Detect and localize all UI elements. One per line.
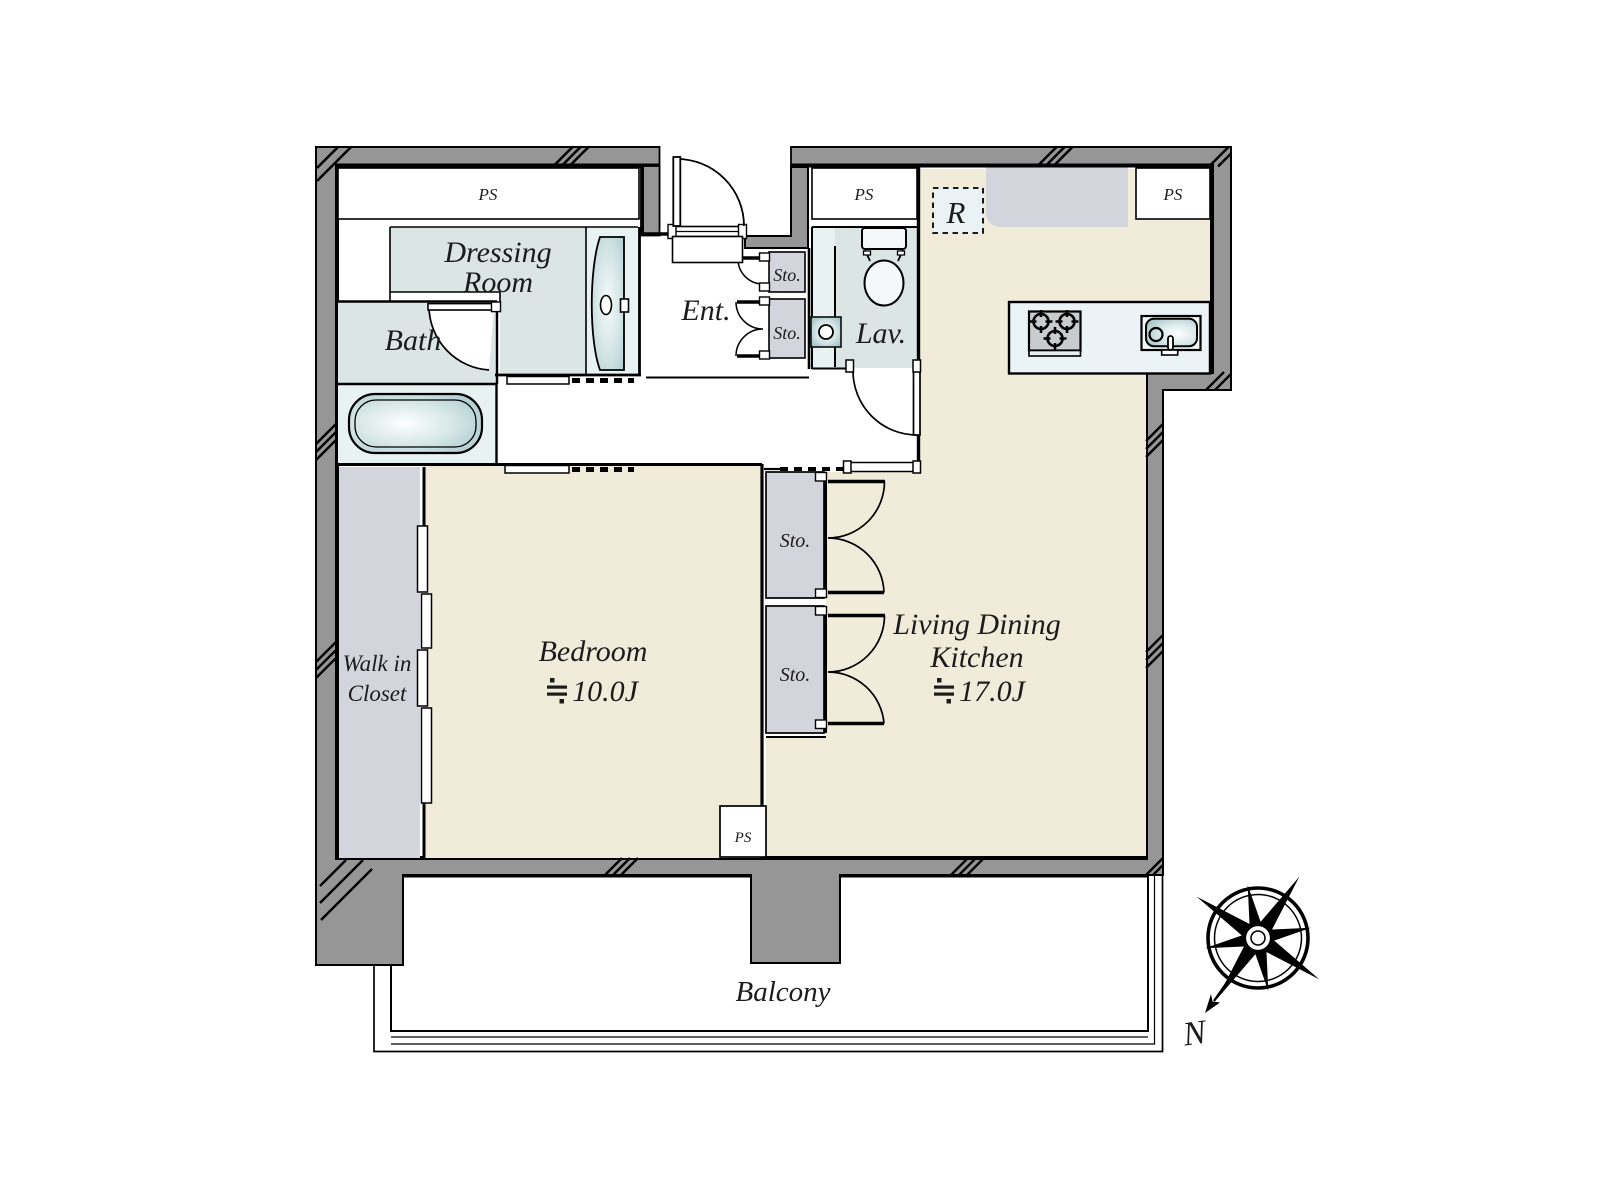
svg-text:Balcony: Balcony: [735, 976, 830, 1008]
svg-text:Sto.: Sto.: [780, 664, 811, 686]
svg-text:Lav.: Lav.: [855, 317, 906, 350]
svg-text:PS: PS: [734, 830, 752, 846]
svg-text:Ent.: Ent.: [680, 294, 730, 327]
svg-text:Kitchen: Kitchen: [929, 641, 1023, 674]
svg-text:Sto.: Sto.: [773, 265, 801, 285]
svg-text:17.0J: 17.0J: [959, 675, 1027, 708]
svg-text:PS: PS: [478, 185, 498, 204]
svg-text:10.0J: 10.0J: [572, 675, 640, 708]
svg-text:Bath: Bath: [385, 324, 442, 357]
svg-text:Closet: Closet: [348, 681, 407, 706]
svg-text:Walk in: Walk in: [343, 651, 412, 676]
svg-text:Sto.: Sto.: [780, 530, 811, 552]
svg-text:R: R: [946, 195, 966, 230]
svg-text:Bedroom: Bedroom: [539, 635, 648, 668]
svg-text:Room: Room: [462, 266, 533, 299]
svg-text:Dressing: Dressing: [443, 236, 551, 269]
svg-text:PS: PS: [854, 185, 874, 204]
svg-text:Living Dining: Living Dining: [892, 608, 1061, 641]
svg-text:Sto.: Sto.: [773, 323, 801, 343]
svg-text:PS: PS: [1163, 185, 1183, 204]
